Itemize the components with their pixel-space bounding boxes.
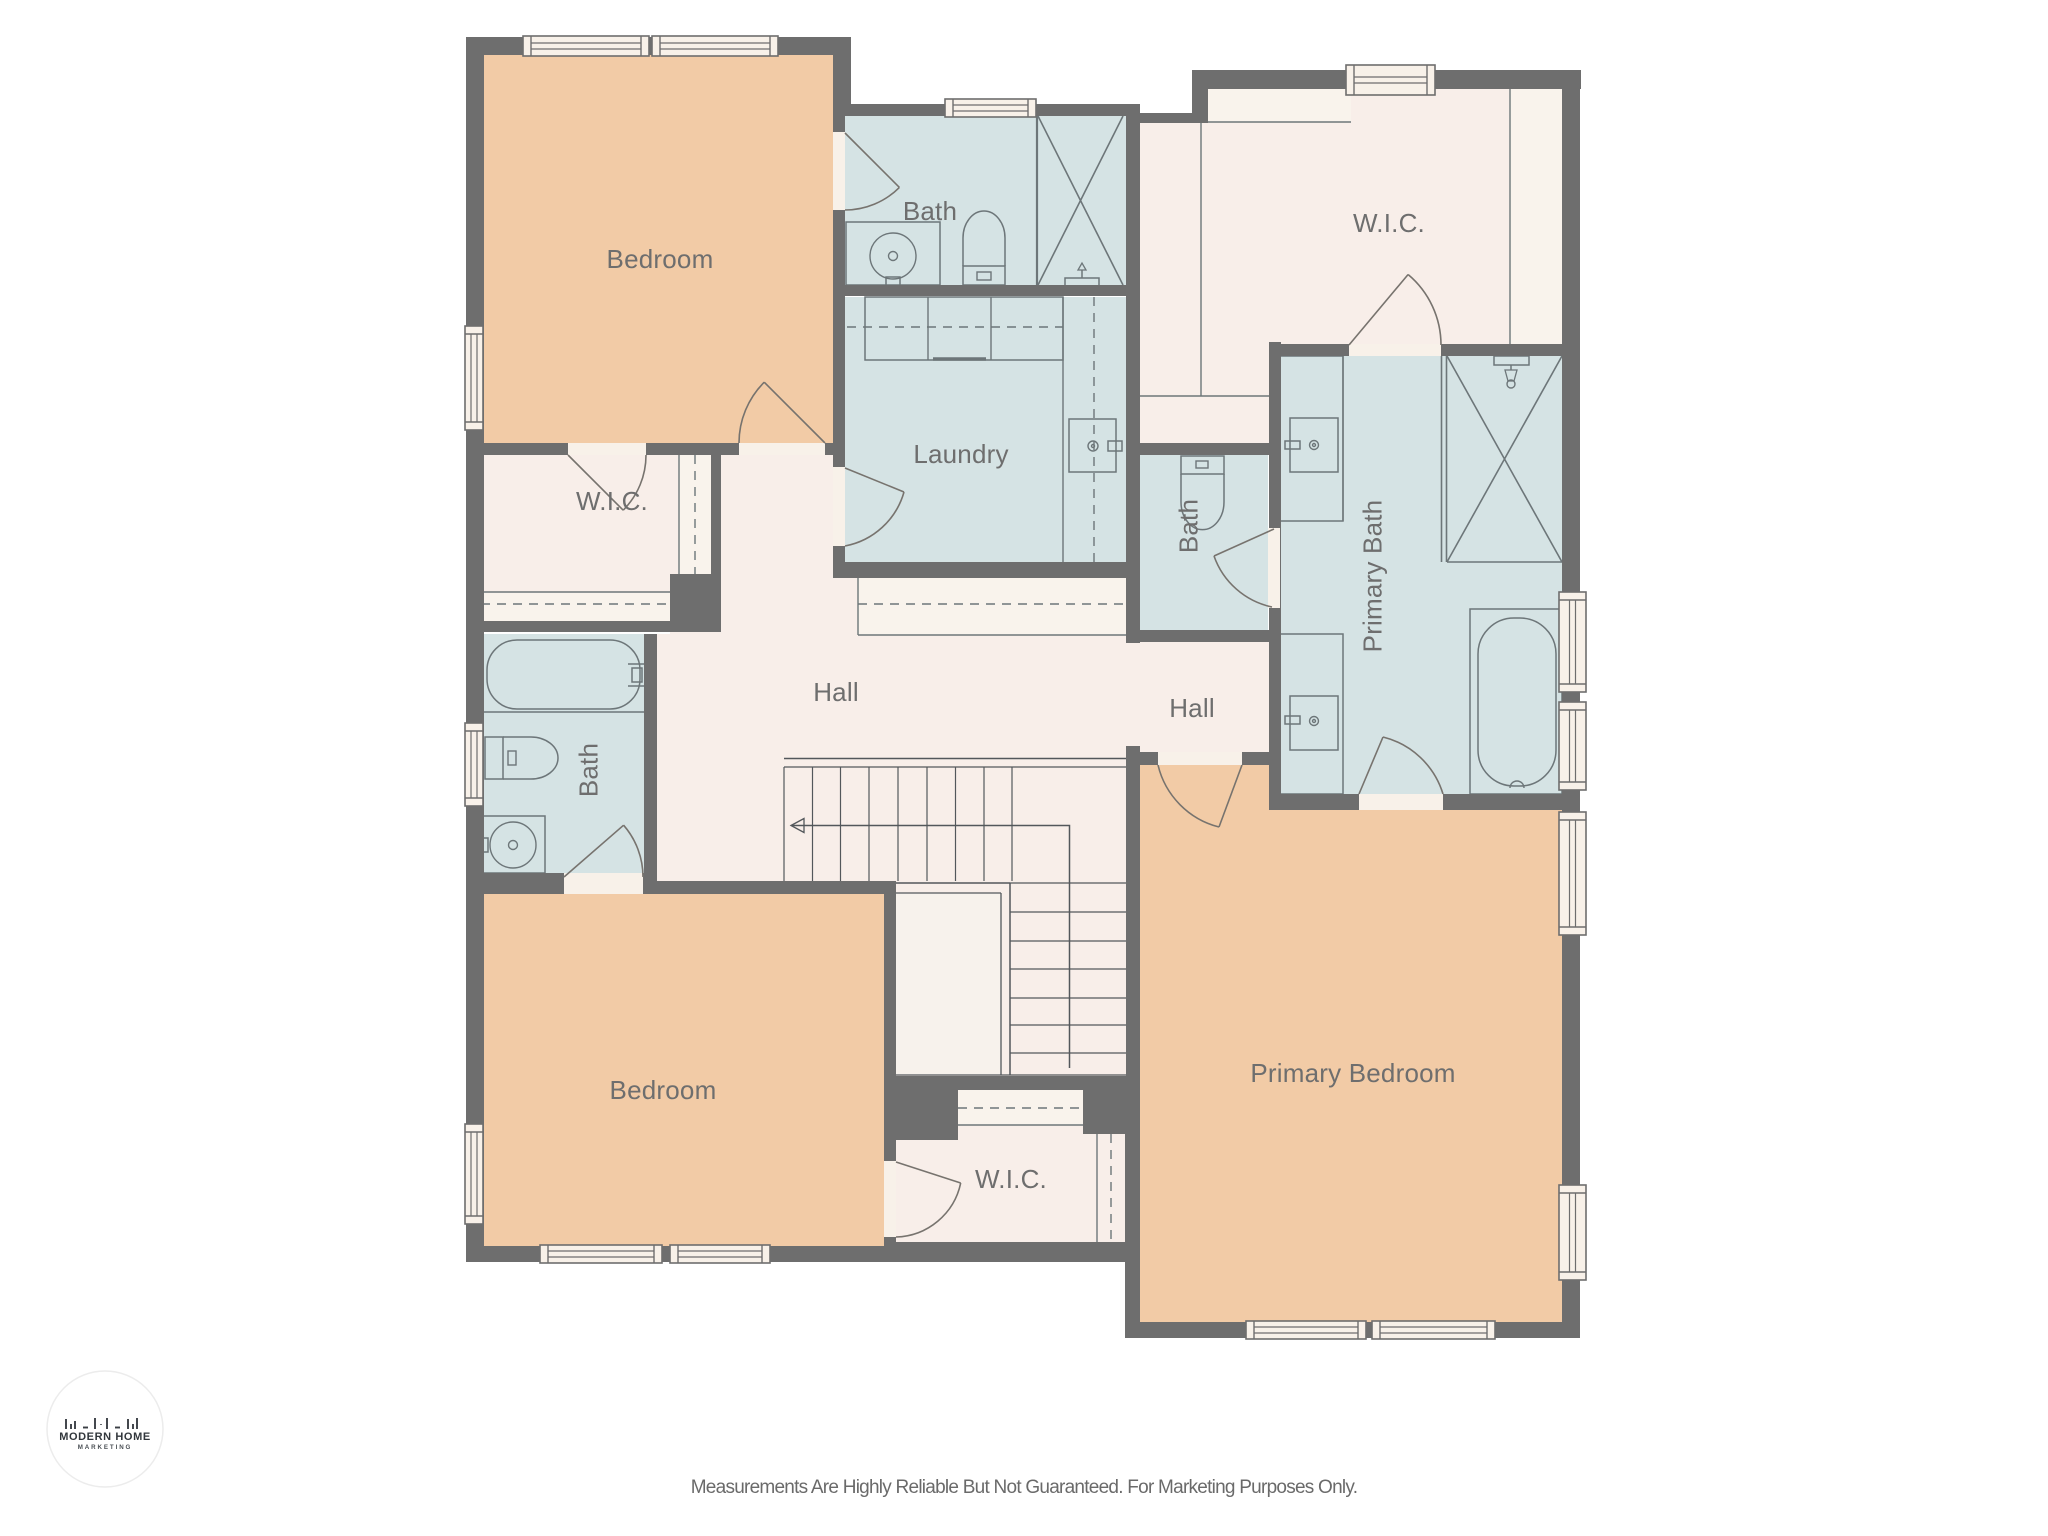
svg-text:Hall: Hall — [1169, 693, 1215, 723]
svg-text:Bedroom: Bedroom — [607, 244, 714, 274]
svg-text:Bath: Bath — [1174, 499, 1204, 553]
svg-text:W.I.C.: W.I.C. — [975, 1164, 1047, 1194]
svg-text:Bedroom: Bedroom — [610, 1075, 717, 1105]
svg-text:Hall: Hall — [813, 677, 859, 707]
svg-text:Primary Bath: Primary Bath — [1358, 500, 1388, 653]
svg-text:Bath: Bath — [574, 743, 604, 797]
svg-text:W.I.C.: W.I.C. — [576, 486, 648, 516]
svg-text:Primary Bedroom: Primary Bedroom — [1250, 1058, 1455, 1088]
svg-text:W.I.C.: W.I.C. — [1353, 208, 1425, 238]
svg-text:MARKETING: MARKETING — [78, 1444, 133, 1451]
svg-text:Bath: Bath — [903, 196, 957, 226]
svg-text:Laundry: Laundry — [913, 439, 1008, 469]
svg-text:Measurements Are Highly Reliab: Measurements Are Highly Reliable But Not… — [691, 1477, 1358, 1498]
svg-text:MODERN HOME: MODERN HOME — [59, 1431, 151, 1443]
